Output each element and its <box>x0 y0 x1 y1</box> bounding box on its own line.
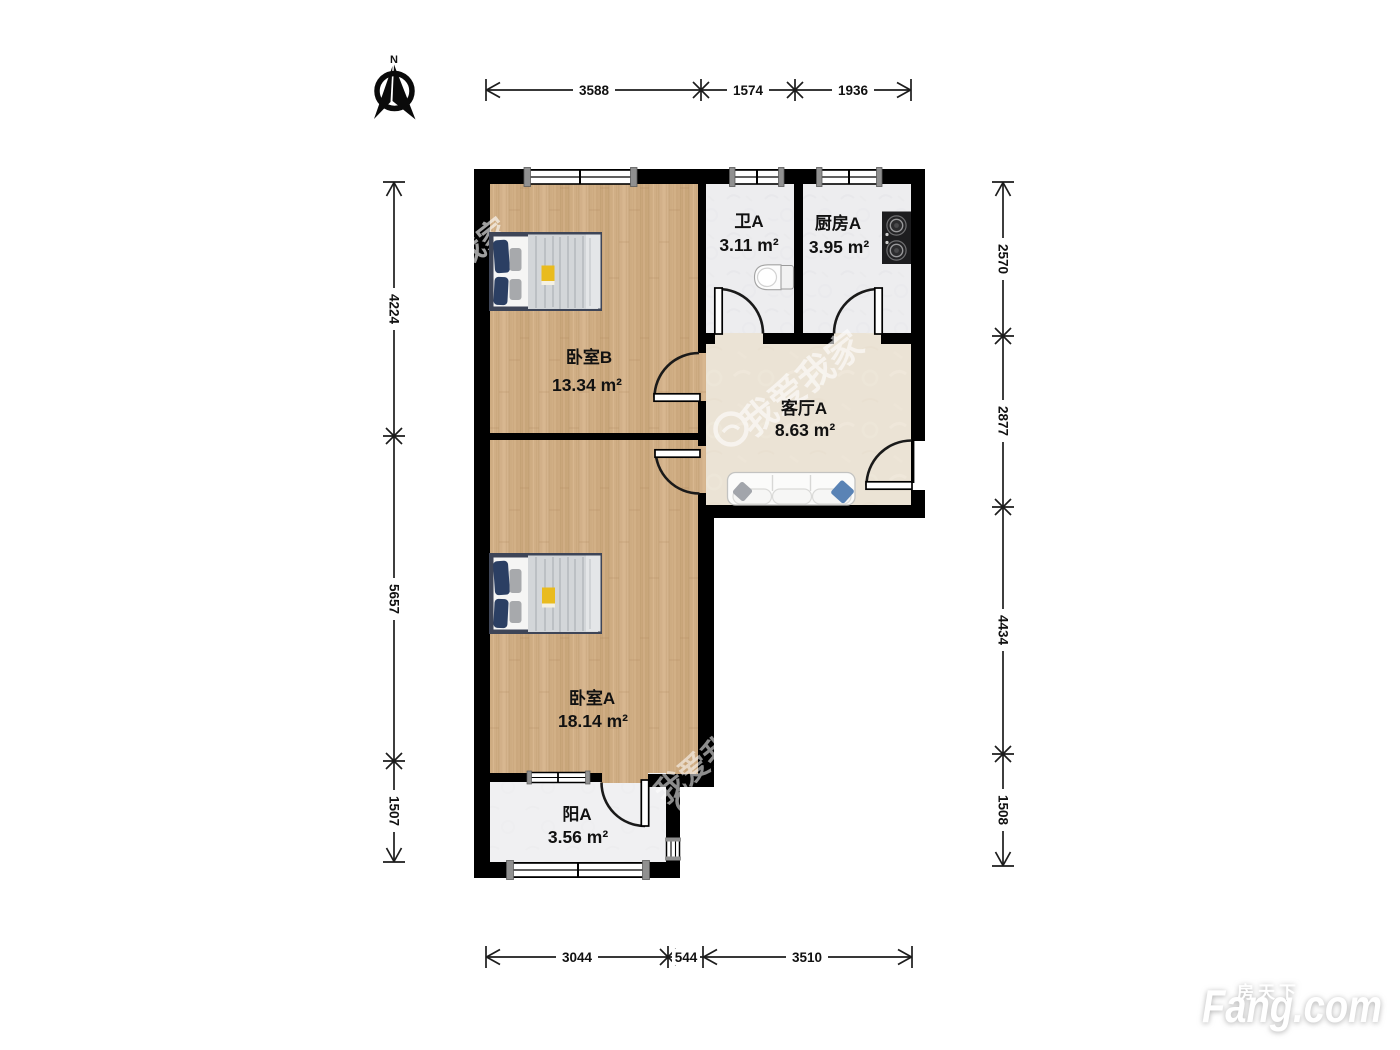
svg-text:18.14 m²: 18.14 m² <box>558 711 628 731</box>
svg-text:8.63 m²: 8.63 m² <box>775 420 835 440</box>
svg-text:3510: 3510 <box>792 950 822 965</box>
svg-text:1507: 1507 <box>387 796 402 826</box>
svg-text:1508: 1508 <box>996 795 1011 826</box>
svg-text:卧室A: 卧室A <box>569 688 615 708</box>
svg-text:4224: 4224 <box>387 294 402 325</box>
svg-text:13.34 m²: 13.34 m² <box>552 375 622 395</box>
svg-text:N: N <box>390 54 398 66</box>
svg-text:3.95 m²: 3.95 m² <box>809 237 869 257</box>
svg-text:Fang.com: Fang.com <box>1202 980 1382 1032</box>
svg-text:厨房A: 厨房A <box>815 213 861 233</box>
svg-text:3.56 m²: 3.56 m² <box>548 827 608 847</box>
svg-text:阳A: 阳A <box>562 805 591 824</box>
svg-text:卫A: 卫A <box>734 212 763 231</box>
svg-text:客厅A: 客厅A <box>780 398 827 418</box>
svg-text:2877: 2877 <box>996 406 1011 436</box>
svg-text:4434: 4434 <box>996 615 1011 646</box>
svg-text:3588: 3588 <box>579 83 610 98</box>
svg-text:2570: 2570 <box>996 244 1011 274</box>
svg-text:3044: 3044 <box>562 950 593 965</box>
svg-text:5657: 5657 <box>387 584 402 614</box>
svg-text:544: 544 <box>675 950 698 965</box>
svg-text:卧室B: 卧室B <box>566 347 612 367</box>
svg-text:1936: 1936 <box>838 83 869 98</box>
svg-text:1574: 1574 <box>733 83 764 98</box>
svg-text:3.11 m²: 3.11 m² <box>719 235 779 255</box>
